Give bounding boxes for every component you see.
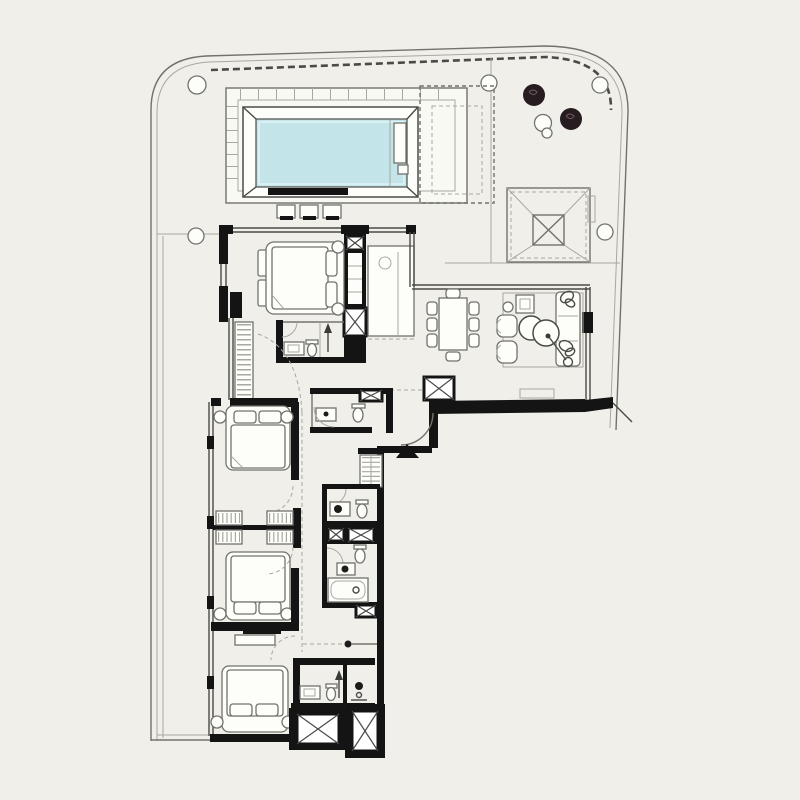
dining-chair: [427, 302, 437, 315]
bedside-lamp: [332, 241, 344, 253]
wall: [322, 484, 327, 526]
dining-chair: [446, 352, 460, 361]
dining-chair: [427, 318, 437, 331]
sofa: [556, 292, 580, 366]
wardrobe-corridor: [235, 322, 253, 400]
pool-terrace: [226, 86, 494, 220]
wall: [230, 292, 242, 318]
wardrobe: [216, 530, 242, 544]
bed-mattress: [231, 425, 285, 468]
washbasin: [300, 686, 320, 699]
pool-edge-bar: [268, 188, 348, 195]
wall: [344, 336, 366, 363]
kitchen-island: [368, 246, 414, 336]
bedside-lamp: [214, 411, 226, 423]
planter-pot: [542, 128, 552, 138]
toilet: [357, 504, 367, 518]
wall: [358, 448, 384, 454]
washbasin: [284, 342, 304, 355]
bed-pillow: [230, 704, 252, 716]
pool-bench: [394, 123, 406, 163]
structural-column: [481, 75, 497, 91]
divider-wall: [213, 525, 299, 530]
glass-mullion: [582, 312, 593, 333]
bedside-lamp: [281, 411, 293, 423]
tree-planter: [523, 84, 545, 106]
wardrobe: [267, 530, 293, 544]
bed-pillow: [256, 704, 278, 716]
window-mullion: [207, 436, 214, 449]
bed-mattress: [231, 556, 285, 602]
bed-pillow: [259, 602, 281, 614]
wall: [386, 388, 393, 433]
window-mullion: [207, 516, 214, 529]
armchair: [497, 341, 517, 363]
dining-chair: [469, 334, 479, 347]
bed-3: [214, 552, 293, 620]
bedside-lamp: [332, 303, 344, 315]
wardrobe: [216, 511, 242, 525]
washbasin-bowl: [342, 566, 349, 573]
pool-stools: [277, 205, 341, 220]
wall: [382, 446, 432, 453]
wall: [322, 521, 380, 526]
bed-pillow: [234, 602, 256, 614]
bathtub: [328, 578, 368, 602]
floor-plan-canvas: [0, 0, 800, 800]
dining-chair: [446, 289, 460, 298]
side-table: [516, 295, 534, 313]
master-bed: [258, 241, 344, 315]
wall: [293, 508, 301, 548]
wall: [276, 320, 283, 363]
south-shafts: [289, 704, 385, 758]
wall: [322, 544, 327, 606]
pool-water: [256, 119, 407, 187]
wall: [322, 484, 380, 489]
toilet: [353, 408, 363, 422]
wall: [293, 658, 375, 665]
bed-pillow: [259, 411, 281, 423]
tree-planter: [560, 108, 582, 130]
washbasin-drain: [324, 412, 329, 417]
bench: [235, 635, 275, 645]
south-wall: [431, 399, 585, 414]
pool-step: [398, 165, 408, 174]
kitchen: [368, 232, 414, 339]
wall: [341, 225, 369, 234]
dining-table: [439, 298, 467, 350]
door-handle-dot: [345, 641, 352, 648]
bed-pillow: [234, 411, 256, 423]
accent-stool: [503, 302, 513, 312]
armchair: [497, 315, 517, 337]
bed-2: [214, 406, 293, 470]
pool-stool-base: [280, 216, 293, 220]
toilet: [355, 549, 365, 563]
shower-divider: [343, 665, 347, 703]
floor-lamp-shade: [546, 334, 551, 339]
bed-pillow: [326, 251, 337, 276]
bedside-lamp: [214, 608, 226, 620]
bed-mattress: [272, 247, 328, 309]
shower-head-dot: [355, 682, 363, 690]
wall: [429, 400, 438, 448]
wall: [211, 398, 221, 406]
wall: [219, 232, 228, 264]
structural-column: [592, 77, 608, 93]
wardrobe: [267, 511, 293, 525]
wall: [291, 568, 299, 628]
washbasin-bowl: [334, 505, 342, 513]
pool-stool-base: [303, 216, 316, 220]
structural-column: [597, 224, 613, 240]
wall: [310, 427, 372, 433]
toilet: [327, 688, 336, 701]
dining-chair: [469, 302, 479, 315]
wall-thick: [243, 626, 281, 634]
pool-stool-base: [326, 216, 339, 220]
toilet: [308, 344, 317, 357]
coffee-table: [533, 320, 559, 346]
wall: [210, 734, 302, 742]
window-mullion: [207, 676, 214, 689]
bed-4: [211, 666, 294, 732]
dining-chair: [427, 334, 437, 347]
wall: [219, 286, 228, 322]
window-mullion: [207, 596, 214, 609]
structural-column: [188, 228, 204, 244]
structural-column: [188, 76, 206, 94]
bedside-lamp: [211, 716, 223, 728]
dining-chair: [469, 318, 479, 331]
